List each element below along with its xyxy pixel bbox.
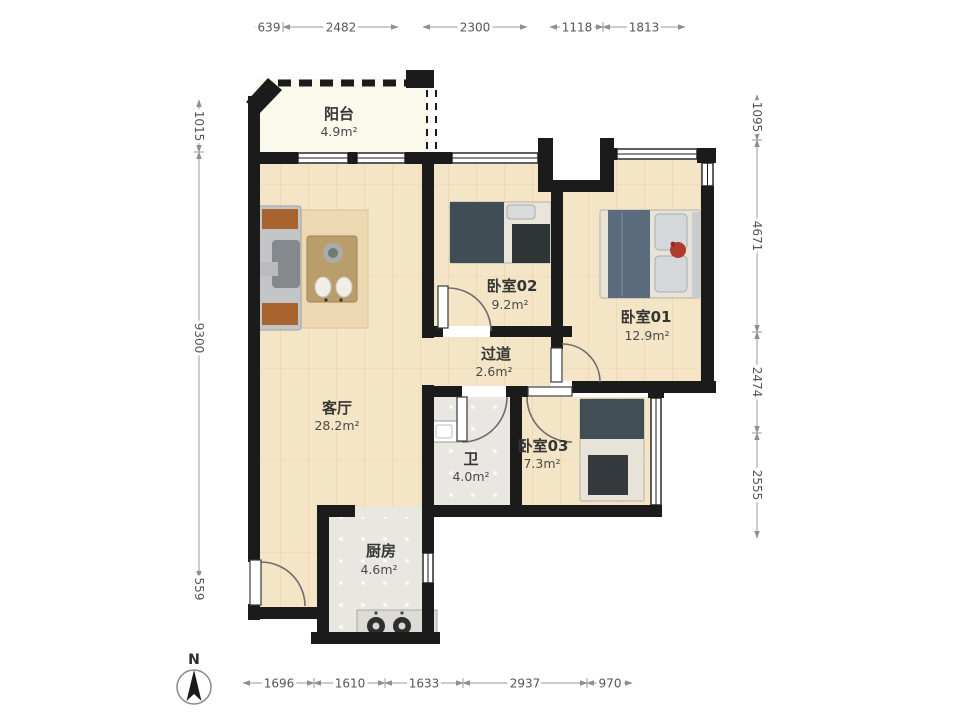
room-area-bathroom: 4.0m²	[452, 469, 489, 484]
coffee-table-icon	[307, 236, 357, 302]
dimension-label: 1015	[192, 111, 206, 142]
dimension-label: 1696	[264, 677, 295, 691]
room-name-bedroom-03: 卧室03	[518, 437, 569, 455]
dimension-label: 1118	[562, 21, 593, 35]
room-area-corridor: 2.6m²	[475, 364, 512, 379]
dimension-label: 2937	[510, 677, 541, 691]
north-label: N	[188, 652, 200, 668]
bed-icon-bedroom-03	[580, 399, 644, 501]
dimension-label: 559	[192, 578, 206, 601]
floor-plan-svg: 阳台 4.9m² 客厅 28.2m² 卧室02 9.2m² 卧室01 12.9m…	[0, 0, 960, 720]
room-name-living-room: 客厅	[321, 399, 352, 417]
room-area-living-room: 28.2m²	[314, 418, 359, 433]
dimension-label: 2482	[326, 21, 357, 35]
dimension-label: 2300	[460, 21, 491, 35]
compass: N	[177, 652, 211, 704]
window	[298, 153, 348, 163]
dimension-label: 639	[258, 21, 281, 35]
room-area-kitchen: 4.6m²	[360, 562, 397, 577]
room-name-kitchen: 厨房	[366, 542, 396, 560]
dimension-label: 1610	[335, 677, 366, 691]
dimension-chain-bottom: 1696 1610 1633 2937 970	[243, 677, 632, 691]
dimension-label: 1095	[750, 102, 764, 133]
room-name-balcony: 阳台	[324, 105, 354, 123]
room-name-corridor: 过道	[481, 345, 511, 363]
room-name-bedroom-02: 卧室02	[487, 277, 538, 295]
window	[423, 553, 433, 583]
room-name-bedroom-01: 卧室01	[621, 308, 672, 326]
kitchen-doorway-floor	[355, 507, 422, 517]
window	[357, 153, 405, 163]
dimension-label: 1813	[629, 21, 660, 35]
room-area-bedroom-02: 9.2m²	[491, 297, 528, 312]
dimension-label: 4671	[750, 221, 764, 252]
bed-icon-bedroom-02	[450, 202, 551, 263]
dimension-label: 2474	[750, 367, 764, 398]
bed-icon-bedroom-01	[600, 210, 700, 298]
dimension-label: 970	[599, 677, 622, 691]
desk-icon	[588, 455, 628, 495]
dimension-label: 9300	[192, 323, 206, 354]
window	[651, 398, 661, 505]
dimension-label: 2555	[750, 470, 764, 501]
dimension-chain-left: 1015 9300 559	[192, 100, 206, 601]
dimension-chain-right: 1095 4671 2474 2555	[750, 95, 764, 538]
window	[452, 153, 538, 163]
dimension-chain-top: 639 2482 2300 1118 1813	[255, 21, 685, 35]
room-area-balcony: 4.9m²	[320, 124, 357, 139]
room-name-bathroom: 卫	[463, 450, 478, 468]
window	[702, 163, 713, 186]
dimension-label: 1633	[409, 677, 440, 691]
window	[617, 149, 697, 159]
room-area-bedroom-01: 12.9m²	[624, 328, 669, 343]
sofa-icon	[257, 206, 301, 330]
room-area-bedroom-03: 7.3m²	[523, 456, 560, 471]
floor-plan-page: 阳台 4.9m² 客厅 28.2m² 卧室02 9.2m² 卧室01 12.9m…	[0, 0, 960, 720]
